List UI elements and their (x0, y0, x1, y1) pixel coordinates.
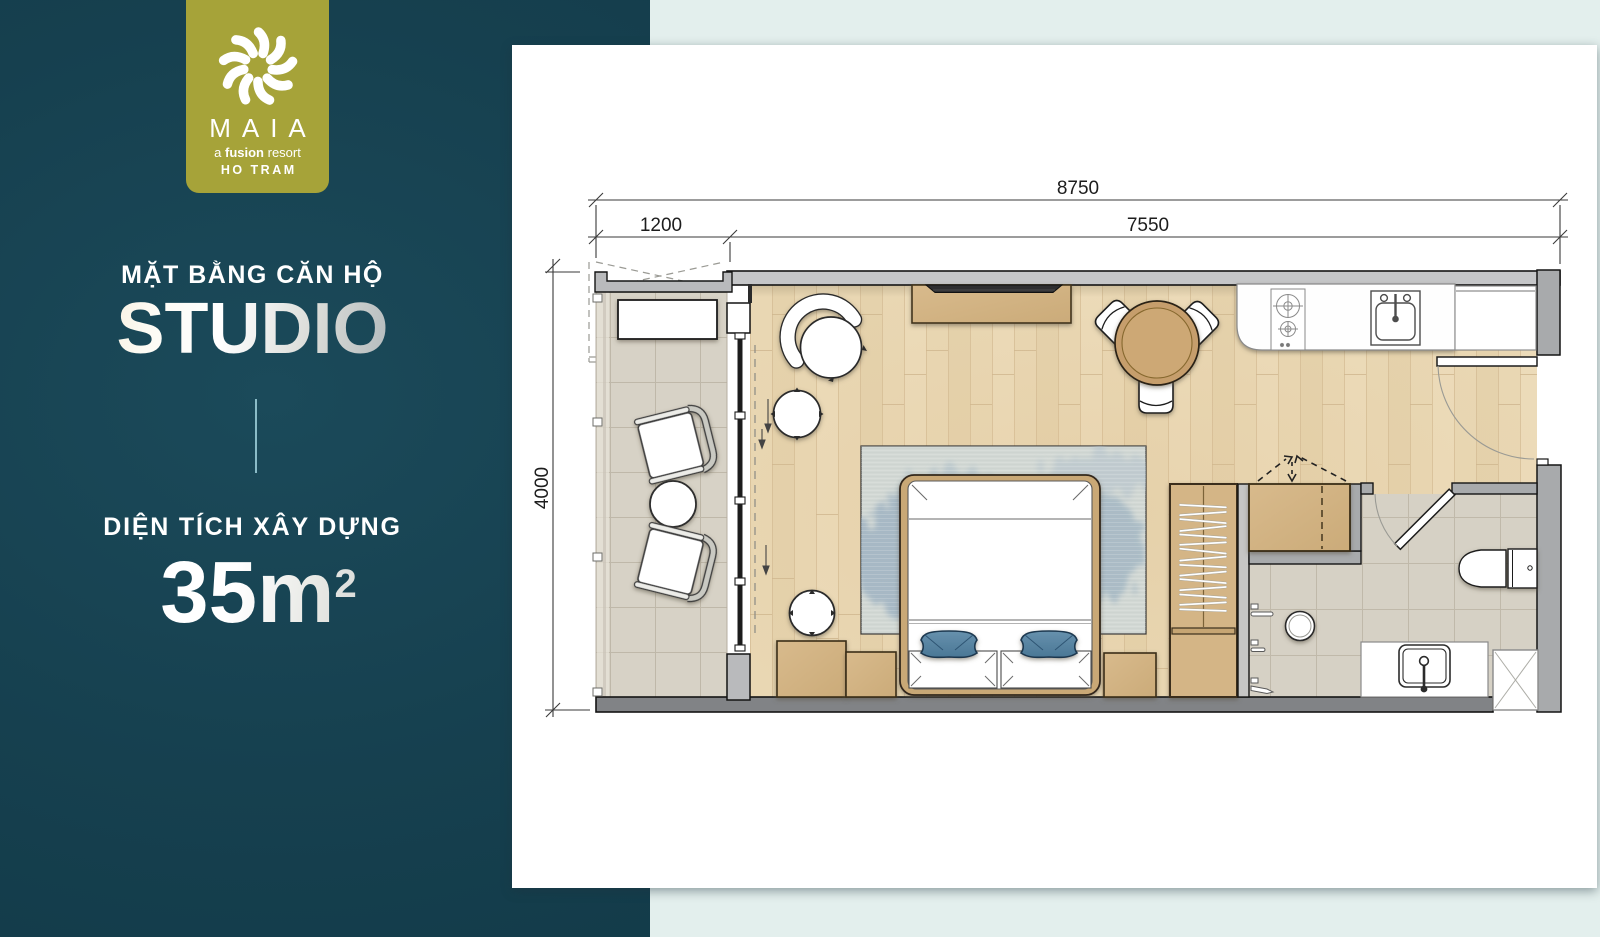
svg-text:7550: 7550 (1127, 215, 1169, 236)
svg-text:8750: 8750 (1057, 178, 1099, 199)
svg-text:1200: 1200 (640, 215, 682, 236)
svg-text:4000: 4000 (532, 467, 553, 509)
